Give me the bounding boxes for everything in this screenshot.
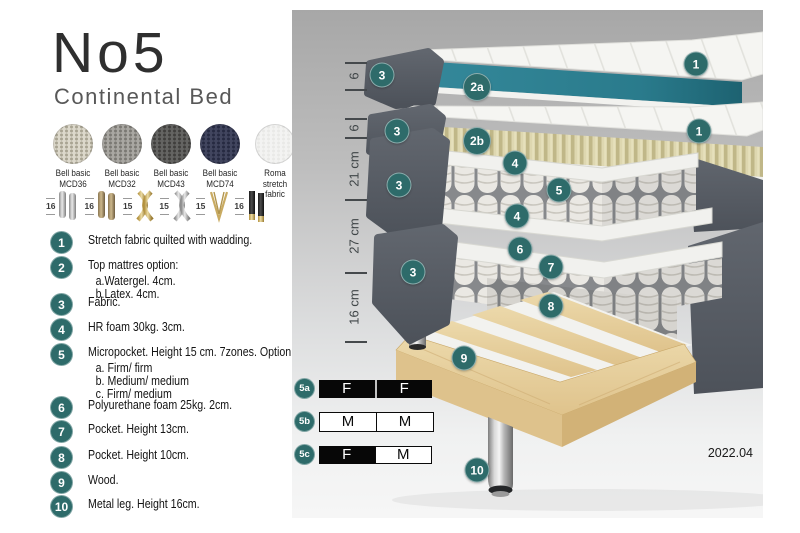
- list-number-badge: 10: [50, 495, 73, 518]
- list-item-text: Micropocket. Height 15 cm. 7zones. Optio…: [88, 345, 294, 359]
- firmness-row-5b: 5b M M: [294, 411, 434, 432]
- list-item-subtext: b. Medium/ medium: [96, 375, 294, 388]
- leg-height-label: 16: [84, 195, 93, 217]
- bed-exploded-illustration: [292, 10, 763, 518]
- firmness-row-5c: 5c F M: [294, 444, 432, 465]
- dimension-label-6a: 6: [347, 72, 362, 79]
- firmness-cell: F: [319, 380, 375, 398]
- list-item-text: Pocket. Height 10cm.: [88, 448, 189, 462]
- list-item-7: 7 Pocket. Height 13cm.: [50, 420, 305, 443]
- leg-option-chrome-cylinder: 16: [46, 188, 82, 224]
- list-item-text: Stretch fabric quilted with wadding.: [88, 233, 252, 247]
- leg-height-label: 15: [196, 195, 205, 217]
- fabric-swatch-circle: [102, 124, 142, 164]
- list-item-subtext: a.Watergel. 4cm.: [96, 275, 179, 288]
- chrome-cylinder-leg-icon: [56, 188, 82, 224]
- callout-badge-5: 5: [547, 178, 572, 203]
- callout-badge-1: 1: [687, 119, 712, 144]
- callout-badge-2b: 2b: [463, 127, 491, 155]
- list-number-badge: 1: [50, 231, 73, 254]
- callout-badge-1: 1: [684, 52, 709, 77]
- callout-badge-4: 4: [505, 204, 530, 229]
- leg-options: 16 16 15 15 15 16: [46, 188, 271, 224]
- list-item-8: 8 Pocket. Height 10cm.: [50, 446, 305, 469]
- firmness-cells: F F: [319, 380, 432, 398]
- leg-option-gold-twist: 15: [123, 188, 157, 224]
- list-item-text: HR foam 30kg. 3cm.: [88, 320, 185, 334]
- dimension-label-21cm: 21 cm: [347, 151, 362, 186]
- fabric-swatch-label: Bell basicMCD32: [101, 168, 142, 189]
- list-number-badge: 7: [50, 420, 73, 443]
- fabric-swatch-label: Bell basicMCD74: [199, 168, 240, 189]
- firmness-cell: F: [375, 380, 433, 398]
- firmness-cells: F M: [319, 446, 432, 464]
- list-number-badge: 9: [50, 471, 73, 494]
- list-number-badge: 4: [50, 318, 73, 341]
- list-number-badge: 2: [50, 256, 73, 279]
- firmness-cells: M M: [319, 412, 434, 432]
- dimension-label-16cm: 16 cm: [347, 289, 362, 324]
- fabric-swatch-circle: [255, 124, 295, 164]
- list-item-text: Polyurethane foam 25kg. 2cm.: [88, 398, 232, 412]
- page-title: No5: [52, 20, 169, 86]
- callout-badge-7: 7: [539, 255, 564, 280]
- list-item-text: Wood.: [88, 473, 119, 487]
- firmness-row-5a: 5a F F: [294, 378, 432, 399]
- leg-option-bronze-cylinder: 16: [84, 188, 120, 224]
- version-label: 2022.04: [708, 446, 753, 460]
- list-item-text: Metal leg. Height 16cm.: [88, 497, 200, 511]
- fabric-swatch-circle: [53, 124, 93, 164]
- list-item-text: Fabric.: [88, 295, 120, 309]
- list-item-text: Top mattres option:: [88, 258, 178, 272]
- firmness-badge: 5c: [294, 444, 315, 465]
- firmness-cell: M: [320, 413, 376, 431]
- ruler-tick: [345, 62, 367, 64]
- bed-diagram-panel: 6 6 21 cm 27 cm 16 cm 3 2a 1 3 2b 1 4 5 …: [292, 10, 763, 518]
- ruler-tick: [345, 199, 367, 201]
- list-item-6: 6 Polyurethane foam 25kg. 2cm.: [50, 396, 305, 419]
- ruler-tick: [345, 118, 367, 120]
- leg-option-hairpin: 15: [196, 188, 232, 224]
- list-item-9: 9 Wood.: [50, 471, 305, 494]
- leg-height-label: 15: [159, 195, 168, 217]
- callout-badge-3: 3: [370, 63, 395, 88]
- leg-height-label: 15: [123, 195, 132, 217]
- firmness-cell: M: [375, 446, 433, 464]
- callout-badge-3: 3: [385, 119, 410, 144]
- callout-badge-9: 9: [452, 346, 477, 371]
- list-number-badge: 8: [50, 446, 73, 469]
- list-item-text: Pocket. Height 13cm.: [88, 422, 189, 436]
- list-number-badge: 6: [50, 396, 73, 419]
- leg-option-silver-twist: 15: [159, 188, 193, 224]
- list-item-1: 1 Stretch fabric quilted with wadding.: [50, 231, 305, 254]
- gold-twist-leg-icon: [133, 188, 157, 224]
- callout-badge-3: 3: [387, 173, 412, 198]
- list-number-badge: 3: [50, 293, 73, 316]
- list-item-4: 4 HR foam 30kg. 3cm.: [50, 318, 305, 341]
- bronze-cylinder-leg-icon: [95, 188, 121, 224]
- hairpin-leg-icon: [206, 188, 232, 224]
- black-gold-leg-icon: [245, 188, 269, 224]
- ruler-tick: [345, 272, 367, 274]
- firmness-cell: M: [376, 413, 433, 431]
- ruler-tick: [345, 89, 367, 91]
- fabric-swatch-label: Bell basicMCD43: [150, 168, 191, 189]
- firmness-badge: 5b: [294, 411, 315, 432]
- callout-badge-4: 4: [503, 151, 528, 176]
- callout-badge-2a: 2a: [463, 73, 491, 101]
- callout-badge-6: 6: [508, 237, 533, 262]
- page-subtitle: Continental Bed: [54, 84, 233, 110]
- fabric-swatch-circle: [200, 124, 240, 164]
- leg-height-label: 16: [46, 195, 55, 217]
- dimension-label-6b: 6: [347, 124, 362, 131]
- list-number-badge: 5: [50, 343, 73, 366]
- ruler-tick: [345, 137, 367, 139]
- fabric-swatch-circle: [151, 124, 191, 164]
- leg-option-black-gold: 16: [234, 188, 268, 224]
- silver-twist-leg-icon: [170, 188, 194, 224]
- list-item-10: 10 Metal leg. Height 16cm.: [50, 495, 305, 518]
- list-item-subtext: a. Firm/ firm: [96, 362, 294, 375]
- firmness-cell: F: [319, 446, 375, 464]
- ruler-tick: [345, 341, 367, 343]
- callout-badge-8: 8: [539, 294, 564, 319]
- dimension-label-27cm: 27 cm: [347, 218, 362, 253]
- callout-badge-10: 10: [465, 458, 490, 483]
- firmness-badge: 5a: [294, 378, 315, 399]
- leg-height-label: 16: [234, 195, 243, 217]
- fabric-swatch-label: Bell basicMCD36: [52, 168, 93, 189]
- list-item-3: 3 Fabric.: [50, 293, 305, 316]
- list-item-5: 5 Micropocket. Height 15 cm. 7zones. Opt…: [50, 343, 305, 400]
- callout-badge-3: 3: [401, 260, 426, 285]
